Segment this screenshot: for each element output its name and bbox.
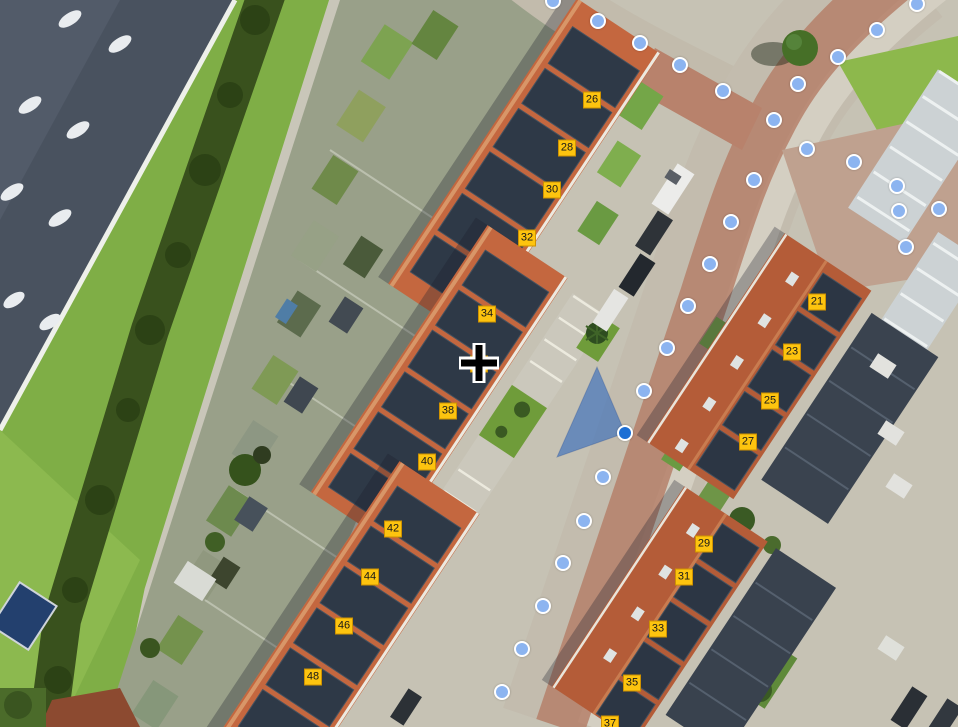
- photo-point[interactable]: [715, 83, 731, 99]
- photo-point[interactable]: [680, 298, 696, 314]
- photo-point[interactable]: [514, 641, 530, 657]
- photo-point[interactable]: [891, 203, 907, 219]
- photo-point[interactable]: [931, 201, 947, 217]
- photo-point[interactable]: [632, 35, 648, 51]
- photo-point[interactable]: [702, 256, 718, 272]
- photo-point[interactable]: [595, 469, 611, 485]
- photo-point[interactable]: [799, 141, 815, 157]
- photo-point[interactable]: [723, 214, 739, 230]
- photo-point[interactable]: [790, 76, 806, 92]
- photo-point[interactable]: [889, 178, 905, 194]
- photo-point[interactable]: [672, 57, 688, 73]
- photo-point-selected[interactable]: [617, 425, 633, 441]
- photo-point[interactable]: [898, 239, 914, 255]
- aerial-map-viewport[interactable]: 2628303234384042444648212325272931333537: [0, 0, 958, 727]
- crosshair-cursor-icon: [455, 339, 503, 387]
- photo-point[interactable]: [869, 22, 885, 38]
- photo-point[interactable]: [590, 13, 606, 29]
- photo-point[interactable]: [659, 340, 675, 356]
- photo-point[interactable]: [636, 383, 652, 399]
- photo-point[interactable]: [535, 598, 551, 614]
- photo-point[interactable]: [746, 172, 762, 188]
- photo-point[interactable]: [555, 555, 571, 571]
- photo-point[interactable]: [576, 513, 592, 529]
- photo-point[interactable]: [494, 684, 510, 700]
- photo-point[interactable]: [830, 49, 846, 65]
- photo-point[interactable]: [846, 154, 862, 170]
- photo-point[interactable]: [766, 112, 782, 128]
